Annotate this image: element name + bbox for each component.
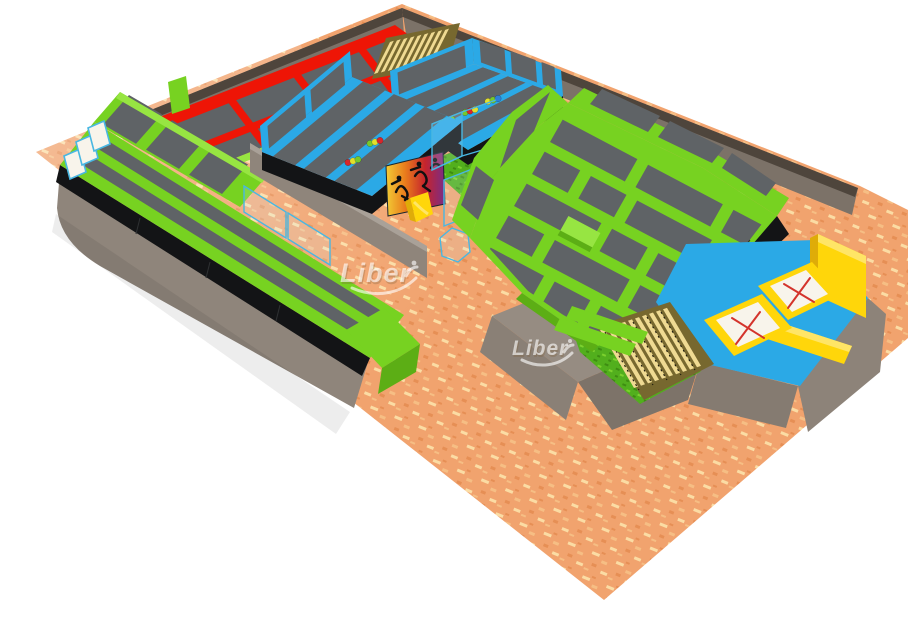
watermark-figure — [412, 261, 417, 266]
trampoline-park-render: Liber Liber Liber Liber — [0, 0, 908, 629]
watermark-figure — [568, 339, 572, 343]
watermark-1: Liber Liber — [340, 258, 417, 294]
green-corner-post — [168, 76, 190, 114]
scene-canvas: Liber Liber Liber Liber — [0, 0, 908, 629]
watermark-text: Liber — [512, 337, 569, 360]
watermark-text: Liber — [340, 258, 412, 288]
watermark-2: Liber Liber — [512, 337, 573, 365]
